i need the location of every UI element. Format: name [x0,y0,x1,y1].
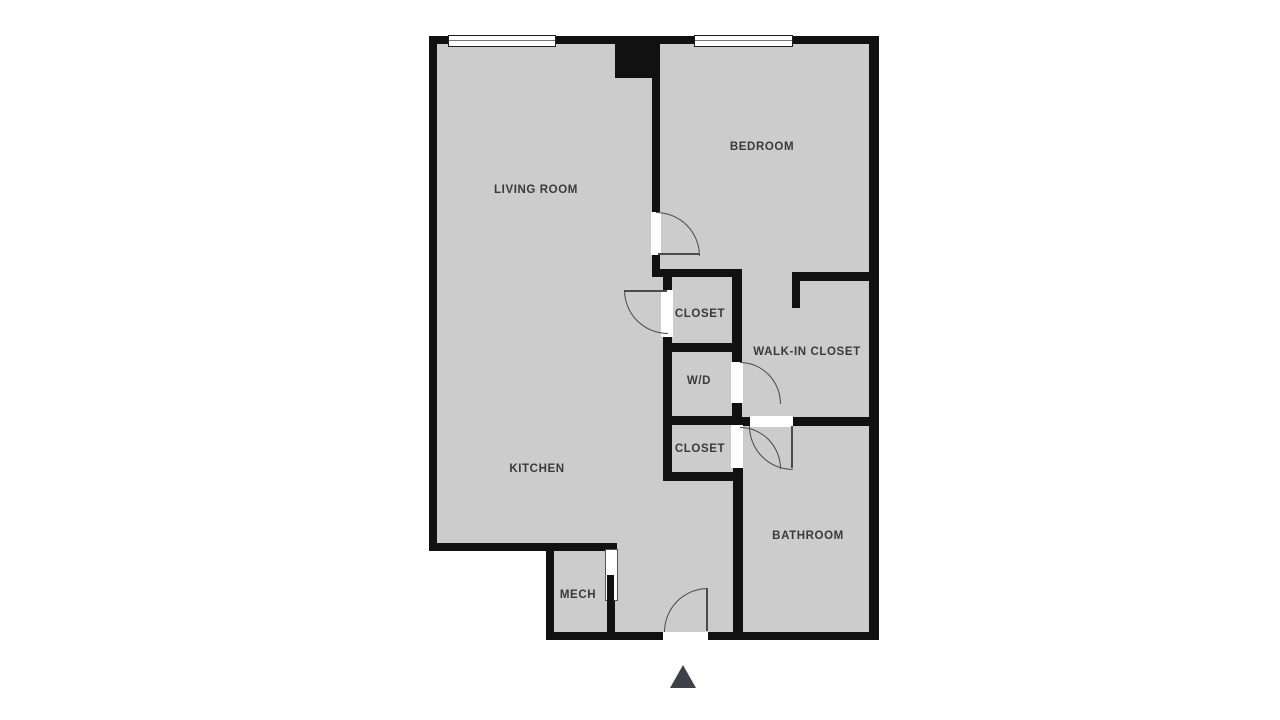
wall-closet-column-left-upper [663,277,672,291]
room-label-bathroom: BATHROOM [772,530,844,542]
door-mech-panel [607,575,614,601]
door-entry-leaf [706,589,708,631]
floor-lower-strip [554,543,869,632]
room-label-mech: MECH [560,589,596,601]
wall-mech-left [546,543,554,640]
window-pane-line [695,40,792,41]
shaft-column [615,36,660,78]
wall-bathroom-left [733,468,743,640]
wall-livingroom-bedroom-upper [652,78,660,212]
door-closet-upper-leaf [624,290,667,292]
wall-walkin-bathroom-right [793,417,869,426]
wall-closet2-bottom [663,472,743,481]
room-label-bedroom: BEDROOM [730,141,794,153]
room-label-kitchen: KITCHEN [509,463,564,475]
window-living-room [448,35,556,47]
wall-right [869,36,879,640]
room-label-closet-upper: CLOSET [675,308,725,320]
door-bathroom-leaf [791,426,793,468]
room-label-walk-in-closet: WALK-IN CLOSET [753,346,860,358]
wall-closet-top [652,269,741,277]
floor-plan: LIVING ROOM BEDROOM CLOSET WALK-IN CLOSE… [0,0,1280,720]
wall-kitchen-bottom [429,543,617,551]
entrance-arrow-icon [670,665,696,688]
window-bedroom [694,35,793,47]
room-label-closet-lower: CLOSET [675,443,725,455]
wall-mech-right-lower [607,600,615,640]
wall-bottom-left [546,632,663,640]
room-label-living-room: LIVING ROOM [494,184,578,196]
wall-left [429,36,437,551]
wall-closet-column-left-lower [663,337,672,480]
wall-closet-column-right-upper [732,269,742,362]
wall-walkin-vertical [792,272,800,308]
wall-walkin-horizontal [792,272,869,281]
room-label-wd: W/D [687,375,711,387]
window-pane-line [449,40,555,41]
wall-wd-closet2 [663,416,741,425]
door-bedroom-leaf [658,253,699,255]
wall-closet1-wd [663,343,741,352]
